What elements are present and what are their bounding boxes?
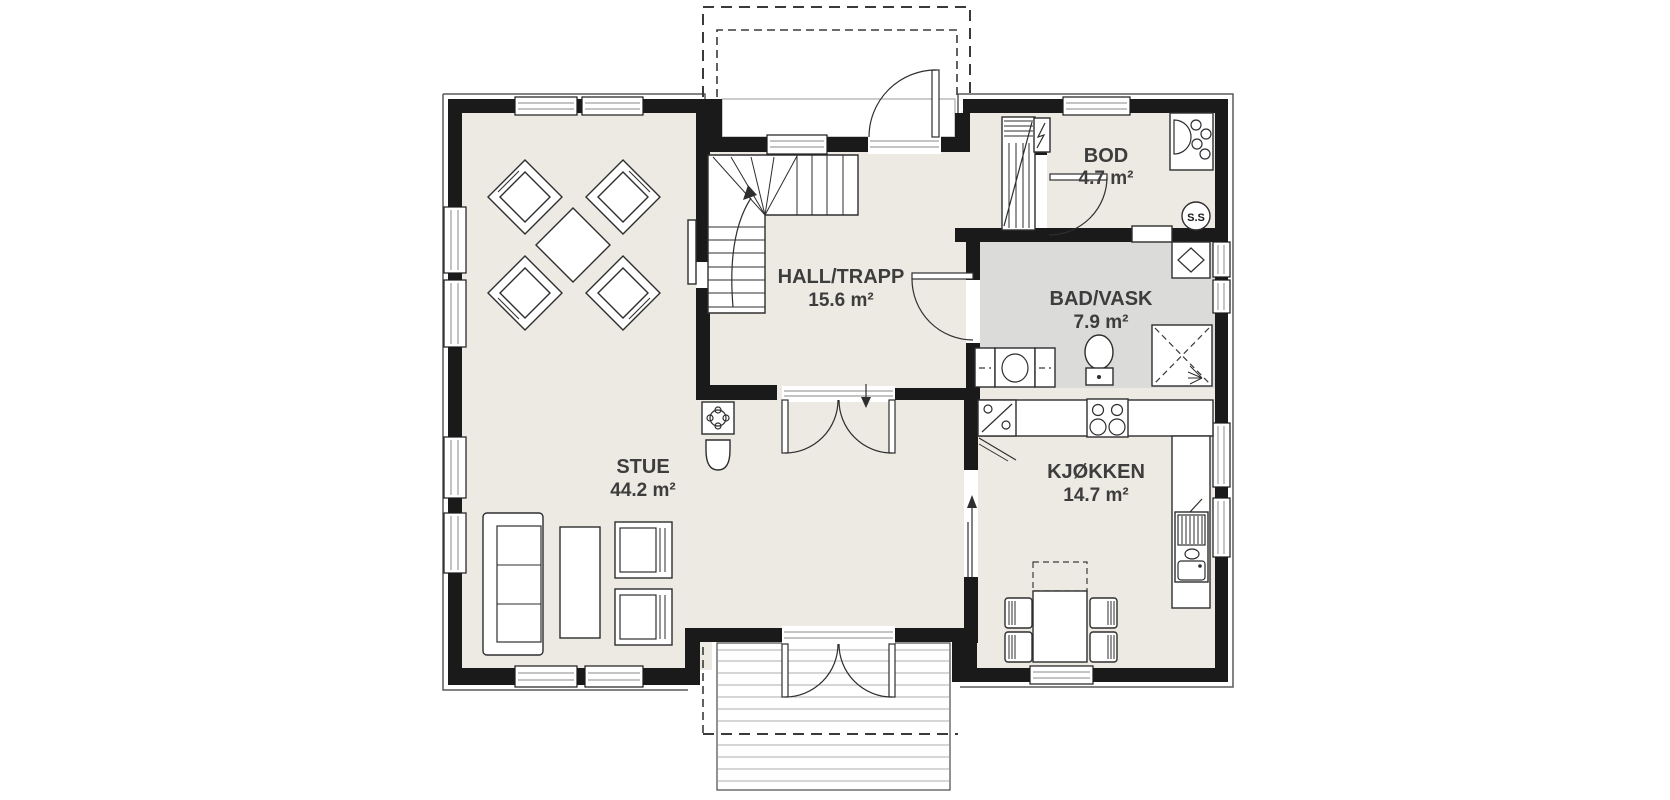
cooktop <box>1087 399 1128 437</box>
kitchen-chair <box>1005 598 1032 628</box>
room-label-kjokken: KJØKKEN <box>1047 461 1145 483</box>
window <box>1063 97 1130 115</box>
wall-kitchen-left-lower <box>964 577 978 643</box>
kitchen-chair <box>1090 598 1117 628</box>
porch-slab <box>722 99 955 137</box>
kitchen-chair <box>1090 632 1117 662</box>
water-heater <box>1172 242 1210 278</box>
floor-plan-svg: S.S <box>0 0 1670 800</box>
wall-niche <box>1132 226 1172 242</box>
armchair <box>615 589 672 645</box>
central-vacuum: S.S <box>1182 202 1210 230</box>
armchair <box>615 522 672 578</box>
window <box>1213 280 1230 313</box>
window <box>1030 666 1093 684</box>
kitchen-table <box>1033 591 1087 662</box>
room-area-hall: 15.6 m² <box>808 290 873 311</box>
wall-bod-bath <box>955 228 1228 242</box>
shower-corner <box>1152 325 1212 386</box>
room-area-bod: 4.7 m² <box>1079 168 1134 189</box>
kitchen-sink <box>1175 499 1208 582</box>
vent-duct <box>1002 117 1035 230</box>
window <box>585 666 643 687</box>
window <box>1213 498 1230 557</box>
room-area-stue: 44.2 m² <box>610 480 675 501</box>
room-label-stue: STUE <box>616 456 669 478</box>
wall-kitchen-left-upper <box>964 388 978 470</box>
room-label-bod: BOD <box>1084 145 1128 167</box>
floor-plan-page: S.S <box>0 0 1670 800</box>
wall-stove-stub <box>696 385 777 400</box>
window <box>582 97 643 115</box>
coffee-table <box>560 527 600 638</box>
kitchen-chair <box>1005 632 1032 662</box>
laundry-sink-counter <box>1170 113 1213 170</box>
window <box>444 207 466 273</box>
window <box>444 437 466 498</box>
electrical-panel <box>1034 118 1050 152</box>
window <box>515 666 577 687</box>
terrace-deck <box>703 643 958 790</box>
washing-machine-group <box>975 348 1055 387</box>
room-label-bad: BAD/VASK <box>1050 288 1154 310</box>
toilet <box>1085 335 1113 385</box>
window <box>1213 242 1230 277</box>
central-vacuum-label: S.S <box>1187 212 1205 224</box>
stove-body <box>706 440 730 470</box>
window <box>1213 423 1230 487</box>
sofa <box>483 513 543 655</box>
window <box>767 135 827 154</box>
room-area-kjokken: 14.7 m² <box>1063 485 1128 506</box>
window <box>444 280 466 347</box>
window <box>515 97 577 115</box>
kitchen-opening-slider <box>964 470 978 577</box>
open-door-leaf <box>688 220 696 284</box>
room-area-bad: 7.9 m² <box>1074 312 1129 333</box>
window <box>444 513 466 573</box>
room-label-hall: HALL/TRAPP <box>778 266 905 288</box>
